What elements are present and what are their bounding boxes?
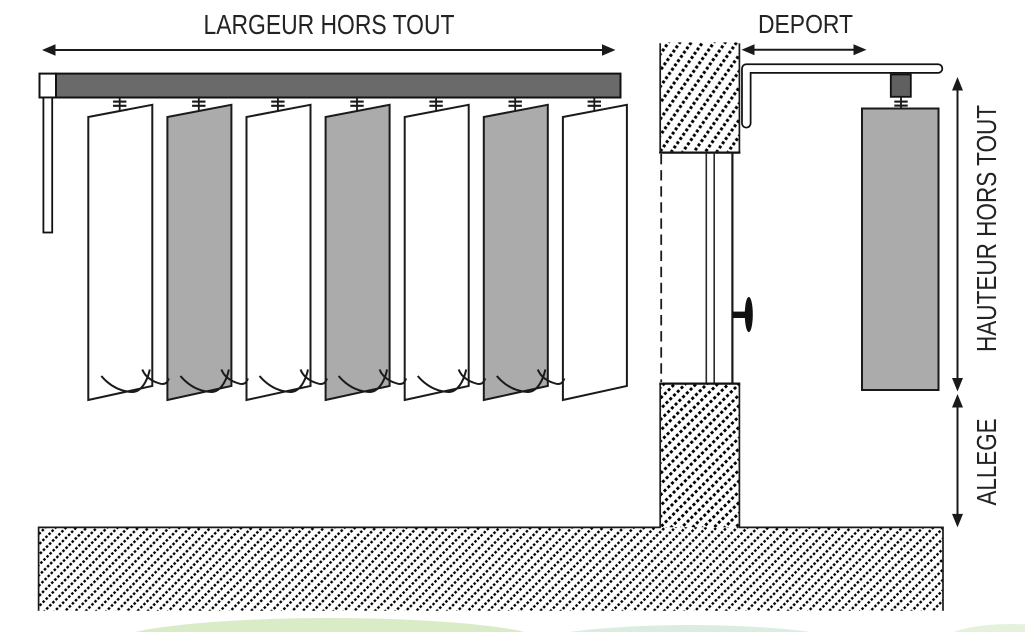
svg-text:DEPORT: DEPORT: [758, 11, 853, 39]
svg-text:ALLEGE: ALLEGE: [971, 419, 1002, 506]
svg-text:LARGEUR HORS TOUT: LARGEUR HORS TOUT: [204, 9, 455, 40]
svg-text:HAUTEUR HORS TOUT: HAUTEUR HORS TOUT: [971, 105, 1002, 352]
